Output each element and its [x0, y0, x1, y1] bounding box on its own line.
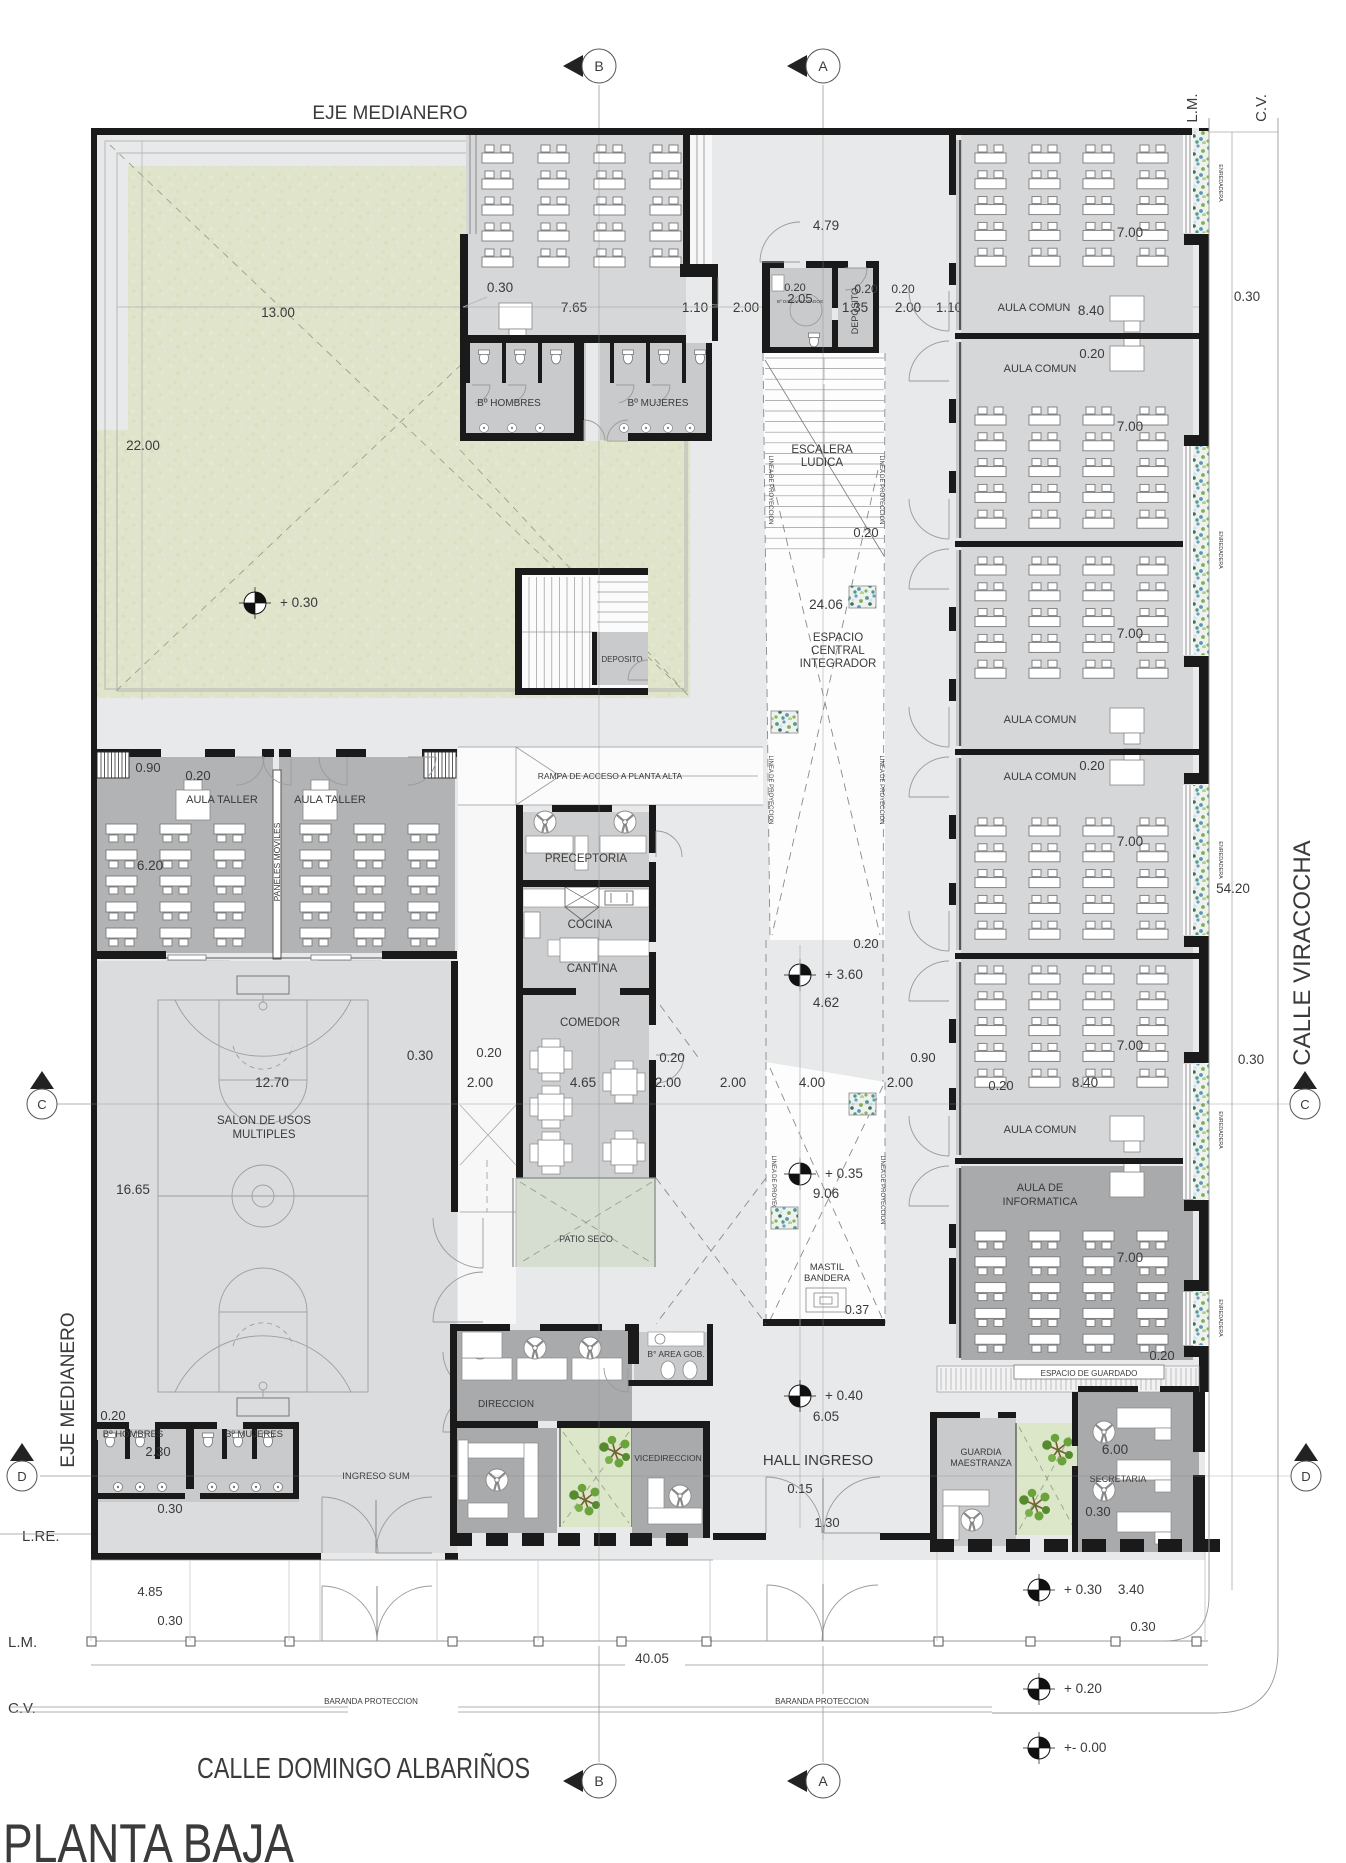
svg-text:PRECEPTORIA: PRECEPTORIA	[545, 853, 628, 865]
svg-text:ESCALERA: ESCALERA	[791, 444, 853, 456]
svg-text:EJE MEDIANERO: EJE MEDIANERO	[312, 103, 467, 124]
svg-text:ESPACIO DE GUARDADO: ESPACIO DE GUARDADO	[1041, 1369, 1138, 1378]
svg-text:2.00: 2.00	[895, 300, 921, 315]
svg-text:0.37: 0.37	[845, 1303, 869, 1317]
svg-text:LINEA DE PROYECCION: LINEA DE PROYECCION	[767, 755, 773, 824]
svg-text:ENREDADERA: ENREDADERA	[1217, 841, 1223, 879]
svg-text:LINEA DE PROYECCION: LINEA DE PROYECCION	[767, 455, 773, 524]
svg-text:0.30: 0.30	[1085, 1504, 1110, 1519]
svg-text:+ 0.35: + 0.35	[825, 1166, 863, 1181]
svg-text:D: D	[17, 1469, 26, 1484]
svg-text:6.00: 6.00	[1102, 1442, 1128, 1457]
svg-text:+ 0.30: + 0.30	[280, 595, 318, 610]
svg-text:0.30: 0.30	[407, 1048, 433, 1063]
svg-text:0.90: 0.90	[910, 1050, 935, 1065]
svg-text:0.20: 0.20	[185, 768, 210, 783]
svg-text:GUARDIA: GUARDIA	[960, 1447, 1001, 1457]
svg-text:AULA COMUN: AULA COMUN	[1004, 1124, 1077, 1136]
svg-text:RAMPA DE ACCESO A PLANTA ALTA: RAMPA DE ACCESO A PLANTA ALTA	[538, 771, 683, 781]
svg-text:A: A	[818, 1773, 828, 1789]
svg-text:0.20: 0.20	[1079, 758, 1104, 773]
svg-text:BANDERA: BANDERA	[804, 1273, 851, 1284]
svg-text:EJE MEDIANERO: EJE MEDIANERO	[58, 1312, 79, 1467]
svg-text:C.V.: C.V.	[8, 1700, 36, 1717]
svg-text:D: D	[1301, 1469, 1310, 1484]
svg-text:16.65: 16.65	[116, 1182, 150, 1197]
svg-text:AULA COMUN: AULA COMUN	[1004, 771, 1077, 783]
svg-text:+ 0.40: + 0.40	[825, 1388, 863, 1403]
svg-text:0.20: 0.20	[1149, 1348, 1174, 1363]
svg-text:L.M.: L.M.	[1184, 93, 1201, 122]
svg-text:0.30: 0.30	[1130, 1619, 1155, 1634]
svg-text:B: B	[594, 58, 603, 74]
svg-text:MULTIPLES: MULTIPLES	[232, 1129, 295, 1141]
svg-text:INGRESO SUM: INGRESO SUM	[342, 1471, 410, 1482]
svg-text:ENREDADERA: ENREDADERA	[1217, 164, 1223, 202]
svg-text:0.20: 0.20	[1079, 346, 1104, 361]
svg-text:AULA TALLER: AULA TALLER	[186, 794, 258, 806]
svg-text:0.20: 0.20	[854, 282, 878, 296]
svg-text:1.35: 1.35	[842, 300, 868, 315]
svg-text:COCINA: COCINA	[568, 919, 613, 931]
svg-text:4.79: 4.79	[813, 218, 839, 233]
svg-text:2.00: 2.00	[733, 300, 759, 315]
svg-text:+ 3.60: + 3.60	[825, 967, 863, 982]
svg-text:4.65: 4.65	[570, 1075, 596, 1090]
svg-text:7.00: 7.00	[1117, 1038, 1143, 1053]
svg-text:CALLE VIRACOCHA: CALLE VIRACOCHA	[1289, 840, 1316, 1065]
svg-text:AULA COMUN: AULA COMUN	[998, 302, 1071, 314]
svg-text:ENREDADERA: ENREDADERA	[1217, 1111, 1223, 1149]
svg-text:ENREDADERA: ENREDADERA	[1217, 1299, 1223, 1337]
svg-text:B° AREA GOB.: B° AREA GOB.	[647, 1349, 704, 1359]
svg-text:0.30: 0.30	[1238, 1052, 1264, 1067]
svg-text:HALL INGRESO: HALL INGRESO	[763, 1452, 873, 1469]
svg-text:Bº MUJERES: Bº MUJERES	[628, 398, 689, 409]
svg-text:AULA DE: AULA DE	[1017, 1182, 1063, 1194]
svg-text:7.00: 7.00	[1117, 834, 1143, 849]
svg-text:C: C	[37, 1097, 46, 1112]
svg-text:LUDICA: LUDICA	[801, 457, 844, 469]
svg-text:L.RE.: L.RE.	[22, 1528, 60, 1545]
svg-text:0.90: 0.90	[135, 760, 160, 775]
svg-text:7.00: 7.00	[1117, 626, 1143, 641]
svg-text:AULA COMUN: AULA COMUN	[1004, 363, 1077, 375]
svg-text:1.30: 1.30	[814, 1515, 839, 1530]
svg-text:8.40: 8.40	[1072, 1075, 1098, 1090]
svg-text:1.10: 1.10	[682, 300, 708, 315]
svg-text:2.00: 2.00	[720, 1075, 746, 1090]
svg-text:0.20: 0.20	[988, 1078, 1013, 1093]
svg-text:24.06: 24.06	[809, 597, 843, 612]
svg-text:L.M.: L.M.	[8, 1634, 37, 1651]
svg-text:2.00: 2.00	[467, 1075, 493, 1090]
svg-text:VICEDIRECCION: VICEDIRECCION	[634, 1453, 702, 1463]
svg-text:PANELES MOVILES: PANELES MOVILES	[272, 822, 282, 901]
svg-text:DEPOSITO: DEPOSITO	[601, 655, 642, 664]
svg-text:12.70: 12.70	[255, 1075, 289, 1090]
svg-text:2.00: 2.00	[887, 1075, 913, 1090]
svg-text:7.00: 7.00	[1117, 419, 1143, 434]
svg-text:C.V.: C.V.	[1253, 94, 1270, 122]
svg-text:4.85: 4.85	[137, 1584, 162, 1599]
svg-text:0.20: 0.20	[476, 1045, 501, 1060]
svg-text:MAESTRANZA: MAESTRANZA	[950, 1458, 1012, 1468]
svg-text:7.65: 7.65	[561, 300, 587, 315]
svg-text:0.20: 0.20	[891, 282, 915, 296]
svg-text:CENTRAL: CENTRAL	[811, 645, 865, 657]
svg-text:40.05: 40.05	[635, 1651, 669, 1666]
svg-text:0.30: 0.30	[157, 1613, 182, 1628]
svg-text:Bº MUJERES: Bº MUJERES	[225, 1429, 283, 1440]
svg-text:0.20: 0.20	[853, 525, 878, 540]
svg-text:LINEA DE PROYECCION: LINEA DE PROYECCION	[878, 455, 884, 524]
svg-text:54.20: 54.20	[1216, 881, 1250, 896]
svg-text:LINEA DE PROYECCION: LINEA DE PROYECCION	[878, 755, 884, 824]
svg-text:6.05: 6.05	[813, 1409, 839, 1424]
svg-text:AULA COMUN: AULA COMUN	[1004, 714, 1077, 726]
svg-text:B: B	[594, 1773, 603, 1789]
svg-text:7.00: 7.00	[1117, 225, 1143, 240]
svg-text:Bº HOMBRES: Bº HOMBRES	[477, 398, 541, 409]
svg-text:CANTINA: CANTINA	[567, 963, 618, 975]
svg-text:SECRETARIA: SECRETARIA	[1090, 1474, 1147, 1484]
svg-text:PATIO SECO: PATIO SECO	[559, 1234, 613, 1244]
svg-text:A: A	[818, 58, 828, 74]
svg-text:6.20: 6.20	[137, 858, 163, 873]
svg-text:COMEDOR: COMEDOR	[560, 1017, 620, 1029]
svg-text:BARANDA PROTECCION: BARANDA PROTECCION	[324, 1697, 418, 1706]
svg-text:Bº HOMBRES: Bº HOMBRES	[103, 1429, 163, 1440]
svg-text:SALON DE USOS: SALON DE USOS	[217, 1115, 311, 1127]
svg-text:ENREDADERA: ENREDADERA	[1217, 531, 1223, 569]
svg-text:8.40: 8.40	[1078, 303, 1104, 318]
svg-text:13.00: 13.00	[261, 305, 295, 320]
svg-text:+ 0.30: + 0.30	[1064, 1582, 1102, 1597]
svg-text:C: C	[1300, 1097, 1309, 1112]
svg-text:PLANTA BAJA: PLANTA BAJA	[3, 1812, 294, 1863]
svg-text:22.00: 22.00	[126, 438, 160, 453]
svg-text:INFORMATICA: INFORMATICA	[1003, 1196, 1079, 1208]
svg-text:+- 0.00: +- 0.00	[1064, 1740, 1106, 1755]
svg-text:INTEGRADOR: INTEGRADOR	[800, 658, 877, 670]
svg-text:ESPACIO: ESPACIO	[813, 632, 863, 644]
svg-text:+ 0.20: + 0.20	[1064, 1681, 1102, 1696]
svg-text:0.20: 0.20	[659, 1050, 684, 1065]
svg-text:0.30: 0.30	[487, 280, 513, 295]
svg-text:4.00: 4.00	[799, 1075, 825, 1090]
svg-text:2.00: 2.00	[655, 1075, 681, 1090]
svg-text:LINEA DE PROYECCION: LINEA DE PROYECCION	[879, 1155, 885, 1224]
svg-text:DIRECCION: DIRECCION	[478, 1399, 534, 1410]
svg-text:0.30: 0.30	[1234, 289, 1260, 304]
svg-text:9.06: 9.06	[813, 1186, 839, 1201]
svg-text:7.00: 7.00	[1117, 1250, 1143, 1265]
svg-text:4.62: 4.62	[813, 995, 839, 1010]
svg-text:3.40: 3.40	[1118, 1582, 1144, 1597]
svg-text:AULA TALLER: AULA TALLER	[294, 794, 366, 806]
svg-text:0.20: 0.20	[853, 936, 878, 951]
svg-text:0.30: 0.30	[157, 1501, 182, 1516]
svg-text:BARANDA PROTECCION: BARANDA PROTECCION	[775, 1697, 869, 1706]
svg-text:MASTIL: MASTIL	[810, 1262, 844, 1273]
svg-text:0.20: 0.20	[100, 1408, 125, 1423]
svg-text:2.05: 2.05	[787, 291, 812, 306]
svg-text:2.30: 2.30	[145, 1444, 170, 1459]
svg-text:CALLE DOMINGO ALBARIÑOS: CALLE DOMINGO ALBARIÑOS	[197, 1751, 530, 1785]
